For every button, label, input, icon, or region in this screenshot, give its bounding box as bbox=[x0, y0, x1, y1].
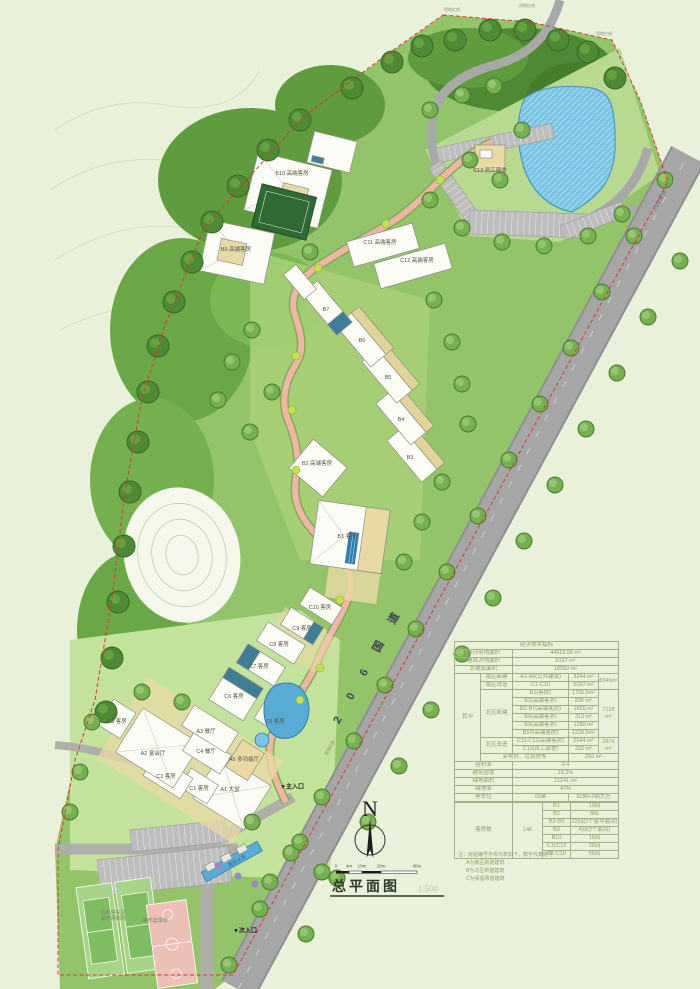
boundary-label: 用地红线 bbox=[519, 3, 535, 9]
label-c4: C4 餐厅 bbox=[196, 747, 216, 755]
label-c10: C10 客房 bbox=[309, 603, 332, 611]
plan-scale: 1:500 bbox=[418, 885, 438, 894]
site-plan-sheet: 2 0 6 国 道 206国道 用地红线 用地红线 用地红线 用地红线 ▼主入口… bbox=[0, 0, 700, 989]
note-line: B为北区新建建筑 bbox=[466, 867, 553, 875]
row-label: 南区新建 bbox=[481, 674, 513, 682]
row-value: 47% bbox=[513, 786, 619, 794]
row-label: 停车位 bbox=[455, 794, 513, 802]
row-value: 2544 m² bbox=[569, 738, 599, 746]
row-value: 1755.5m² bbox=[569, 690, 599, 698]
label-a3: A3 餐厅 bbox=[196, 727, 215, 735]
row-label: 建筑密度 bbox=[455, 770, 513, 778]
tennis-court-label-line2: 兼作网球场 bbox=[100, 916, 125, 922]
note-line: C为保留改造建筑 bbox=[466, 875, 553, 883]
basketball-court-label: 兼作篮球场 bbox=[142, 918, 167, 924]
among-label: 其中 bbox=[455, 674, 481, 762]
scale-tick-40m: 40m bbox=[413, 864, 422, 869]
label-c7: C7 客房 bbox=[249, 662, 269, 670]
row-value: 4间(2个套间) bbox=[571, 826, 619, 834]
row-value: 3244 m² bbox=[569, 674, 599, 682]
row-name: B1 bbox=[543, 802, 571, 810]
row-name: B8(高端客房) bbox=[513, 714, 569, 722]
label-b10: B10 高端客房 bbox=[275, 169, 308, 177]
row-value: 1665 m² bbox=[569, 706, 599, 714]
label-b9: B9 高端客房 bbox=[221, 245, 251, 253]
row-value: 21241 m² bbox=[513, 778, 619, 786]
label-c1: C1 客房 bbox=[189, 784, 209, 792]
label-c13: C13 员工宿舍 bbox=[473, 166, 507, 174]
row-value: 0.4 bbox=[513, 762, 619, 770]
row-label: 总建筑面积 bbox=[455, 666, 513, 674]
row-name: C11-C12(高端客房) bbox=[513, 738, 569, 746]
secondary-entrance-label: ▼次入口 bbox=[233, 926, 257, 935]
label-b6: B6 bbox=[359, 338, 366, 344]
scale-tick-4m: 4m bbox=[346, 864, 352, 869]
row-value: 93辆 bbox=[513, 794, 569, 802]
label-c11: C11 高端客房 bbox=[363, 238, 396, 246]
row-value: 18550 m² bbox=[513, 666, 619, 674]
row-label: 绿地率 bbox=[455, 786, 513, 794]
north-new-total: 7128 m² bbox=[599, 690, 619, 738]
row-name: B9 bbox=[543, 826, 571, 834]
north-letter: N bbox=[362, 796, 378, 822]
row-label: 容积率 bbox=[455, 762, 513, 770]
table-title: 经济技术指标 bbox=[455, 642, 619, 650]
row-name: B10(高端客房) bbox=[513, 730, 569, 738]
row-name: B2(高端客房) bbox=[513, 698, 569, 706]
scale-tick-20m: 20m bbox=[377, 864, 386, 869]
row-label: 设计用地面积 bbox=[455, 650, 513, 658]
row-value: 8197 m² bbox=[513, 658, 619, 666]
row-name: B3-B8 bbox=[543, 818, 571, 826]
label-c9: C9 客房 bbox=[292, 624, 312, 632]
row-value: 5097 m² bbox=[569, 682, 599, 690]
economic-indicators-table: 经济技术指标 设计用地面积44919.95 m² 建筑占地面积8197 m² 总… bbox=[454, 641, 618, 859]
row-value: 8间 bbox=[571, 810, 619, 818]
row-value: 10间 bbox=[571, 802, 619, 810]
row-label: 变电房、垃圾房等 bbox=[481, 754, 569, 762]
row-name: B2 bbox=[543, 810, 571, 818]
label-b2: B2 高端客房 bbox=[302, 459, 332, 467]
label-c8: C8 客房 bbox=[269, 640, 289, 648]
south-total: 8346m² bbox=[599, 674, 619, 690]
row-value: 313 m² bbox=[569, 714, 599, 722]
row-name: B1(客房) bbox=[513, 690, 569, 698]
eco-table-rooms: 客房数 146 B1 10间 B28间 B3-B822间(2个豪华套间) B94… bbox=[454, 802, 619, 859]
row-value: 56间 bbox=[571, 850, 619, 858]
label-c2: C2 客房 bbox=[156, 772, 176, 780]
row-detail: 91辆+2辆大巴 bbox=[569, 794, 619, 802]
tennis-court-label: 临时停车区 兼作网球场 bbox=[100, 910, 125, 922]
row-name: B3-B7(高端客房) bbox=[513, 706, 569, 714]
main-entrance-label: ▼主入口 bbox=[280, 782, 304, 791]
north-renov-total: 2876 m² bbox=[599, 738, 619, 754]
row-name: A1-A6(公共建筑) bbox=[513, 674, 569, 682]
row-name: C1-C10 bbox=[513, 682, 569, 690]
boundary-label: 用地红线 bbox=[596, 31, 612, 37]
label-c12: C12 高端客房 bbox=[400, 256, 434, 264]
row-value: 16间 bbox=[571, 834, 619, 842]
row-value: 44919.95 m² bbox=[513, 650, 619, 658]
scale-tick-10m: 10m bbox=[358, 864, 367, 869]
eco-table-upper: 经济技术指标 设计用地面积44919.95 m² 建筑占地面积8197 m² 总… bbox=[454, 641, 619, 802]
label-a6: A6 多功能厅 bbox=[229, 755, 259, 763]
label-c5: C5 客房 bbox=[265, 717, 285, 725]
table-notes: 注：房屋编号字母代表如下，数字代表楼号 A为南区新建建筑 B为北区新建建筑 C为… bbox=[458, 851, 553, 883]
north-arrow bbox=[355, 818, 385, 858]
plan-title: 总平面图 bbox=[332, 876, 400, 896]
label-c6: C6 客房 bbox=[224, 692, 244, 700]
label-c3: C3 客房 bbox=[107, 717, 127, 725]
rooms-label: 客房数 bbox=[455, 802, 513, 858]
note-line: A为南区新建建筑 bbox=[466, 859, 553, 867]
label-b1: B1 客房 bbox=[337, 532, 356, 540]
boundary-label: 用地红线 bbox=[444, 7, 460, 13]
row-value: 260 m² bbox=[569, 754, 619, 762]
row-value: 896 m² bbox=[569, 698, 599, 706]
row-label: 北区新建 bbox=[481, 690, 513, 738]
row-name: B10 bbox=[543, 834, 571, 842]
label-a2: A2 宴会厅 bbox=[141, 749, 166, 757]
row-value: 18.2% bbox=[513, 770, 619, 778]
note-line: 注：房屋编号字母代表如下，数字代表楼号 bbox=[458, 851, 553, 859]
row-name: C13(员工宿舍) bbox=[513, 746, 569, 754]
row-label: 南区改造 bbox=[481, 682, 513, 690]
row-value: 1280 m² bbox=[569, 722, 599, 730]
row-label: 北区改造 bbox=[481, 738, 513, 754]
row-value: 332 m² bbox=[569, 746, 599, 754]
row-label: 建筑占地面积 bbox=[455, 658, 513, 666]
scale-tick-0: 0 bbox=[335, 864, 338, 869]
row-value: 1228.5m² bbox=[569, 730, 599, 738]
label-b7: B7 bbox=[323, 307, 330, 313]
label-b3: B3 bbox=[407, 455, 414, 461]
row-name: B9(高端客房) bbox=[513, 722, 569, 730]
label-b5: B5 bbox=[385, 375, 392, 381]
scale-bar bbox=[336, 871, 417, 874]
row-name: C11C12 bbox=[543, 842, 571, 850]
label-b4: B4 bbox=[398, 417, 405, 423]
rooms-total: 146 bbox=[513, 802, 543, 858]
label-a1: A1 大堂 bbox=[220, 785, 239, 793]
row-value: 28间 bbox=[571, 842, 619, 850]
row-value: 22间(2个豪华套间) bbox=[571, 818, 619, 826]
row-label: 绿地面积 bbox=[455, 778, 513, 786]
